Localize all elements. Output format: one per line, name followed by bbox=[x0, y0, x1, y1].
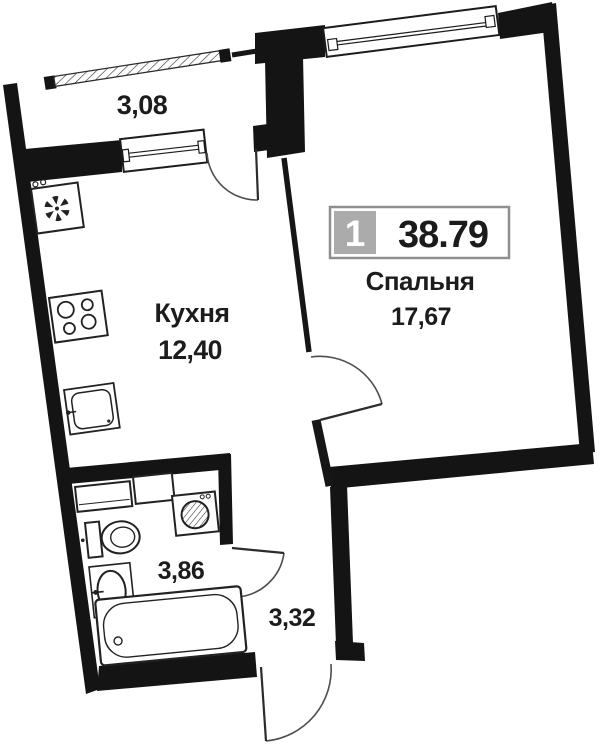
area-label-kitchen: 12,40 bbox=[158, 335, 222, 365]
window-sill-cap bbox=[485, 15, 495, 27]
bathroom-counter bbox=[133, 473, 175, 504]
kitchen-window bbox=[120, 130, 207, 172]
hinge-dot bbox=[33, 182, 39, 188]
door-swing-arc bbox=[311, 356, 382, 404]
bedroom-window bbox=[323, 6, 499, 57]
room-label-bedroom: Спальня bbox=[366, 266, 475, 296]
unit-area-badge: 1 38.79 bbox=[330, 207, 509, 258]
bedroom-door bbox=[311, 356, 382, 420]
flush-dot bbox=[81, 538, 85, 542]
wall-bedroom-bottom bbox=[329, 443, 594, 489]
wall-divider-notch bbox=[253, 124, 269, 152]
wall-right bbox=[541, 3, 595, 454]
balcony-glazing-window bbox=[44, 48, 232, 90]
door-leaf bbox=[320, 404, 382, 420]
glazing-cap-right bbox=[219, 48, 232, 63]
window-sill-cap bbox=[198, 141, 205, 154]
wall-hallway-foot bbox=[335, 641, 365, 661]
wall-bathroom-right-upper bbox=[218, 454, 233, 545]
wall-partition-below-bedroom-door bbox=[316, 420, 330, 486]
bathroom-cabinet bbox=[75, 481, 132, 512]
area-label-balcony: 3,08 bbox=[117, 90, 168, 120]
bathtub bbox=[95, 586, 247, 666]
window-sill-cap bbox=[122, 149, 129, 162]
stove bbox=[49, 291, 108, 343]
door-swing-arc bbox=[266, 664, 331, 741]
toilet-tank bbox=[85, 522, 103, 558]
wall-partition-kitchen-bedroom bbox=[284, 158, 309, 352]
washing-machine bbox=[172, 492, 219, 536]
door-leaf bbox=[256, 149, 258, 200]
fridge bbox=[30, 175, 84, 234]
area-label-hallway: 3,32 bbox=[269, 604, 316, 632]
hinge-dot bbox=[40, 179, 46, 185]
kitchen-sink bbox=[63, 383, 120, 435]
wall-hallway-right bbox=[330, 485, 353, 645]
balcony-door bbox=[207, 149, 258, 200]
door-swing-arc bbox=[237, 553, 284, 597]
floor-plan: 1 38.79 3,08 Кухня 12,40 Спальня 17,67 3… bbox=[0, 0, 600, 745]
unit-number: 1 bbox=[345, 213, 366, 254]
window-frame bbox=[120, 130, 207, 172]
wall-balcony-parapet bbox=[14, 140, 122, 183]
wall-stub-balcony bbox=[232, 51, 257, 55]
door-swing-arc bbox=[207, 153, 258, 200]
door-leaf bbox=[261, 667, 266, 741]
total-area-value: 38.79 bbox=[398, 214, 488, 256]
room-label-kitchen: Кухня bbox=[155, 298, 230, 328]
toilet bbox=[79, 517, 141, 558]
area-label-bathroom: 3,86 bbox=[158, 557, 205, 585]
wall-balcony-divider-vertical bbox=[265, 56, 305, 158]
door-leaf bbox=[232, 548, 284, 553]
entrance-door bbox=[261, 664, 331, 741]
floor-plan-canvas: 1 38.79 3,08 Кухня 12,40 Спальня 17,67 3… bbox=[0, 0, 600, 745]
area-label-bedroom: 17,67 bbox=[391, 303, 451, 331]
window-sill-cap bbox=[328, 39, 338, 51]
glazing-band bbox=[54, 51, 222, 87]
